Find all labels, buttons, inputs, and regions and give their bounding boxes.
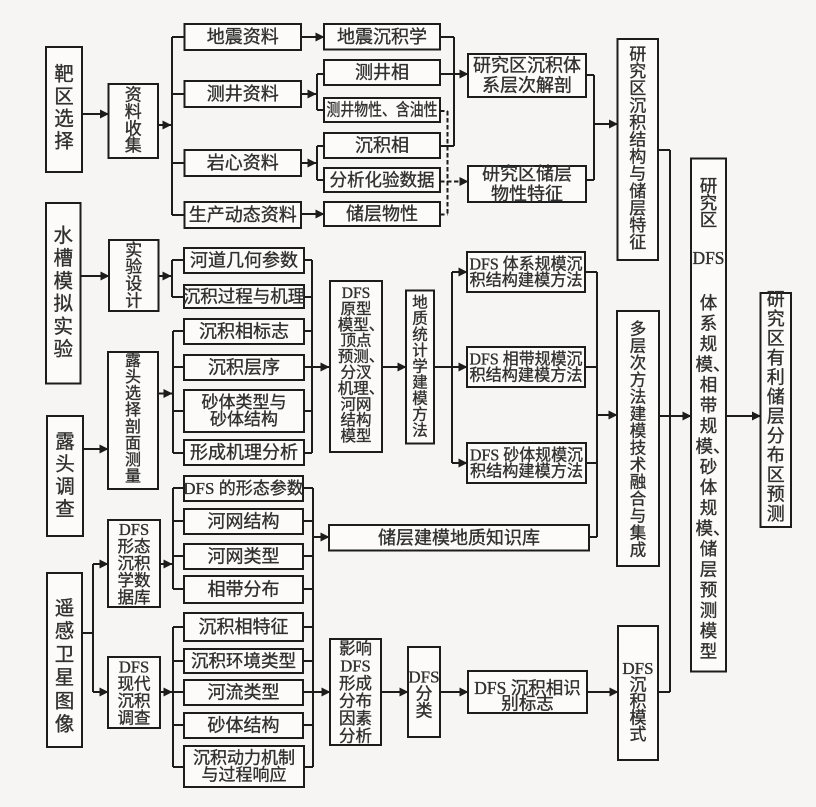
svg-text:查: 查 xyxy=(55,498,75,520)
svg-text:相: 相 xyxy=(700,375,718,395)
svg-text:结构: 结构 xyxy=(340,411,371,429)
svg-text:卫: 卫 xyxy=(55,645,75,666)
svg-text:征: 征 xyxy=(629,233,646,252)
svg-text:像: 像 xyxy=(55,714,75,736)
svg-text:层: 层 xyxy=(700,560,718,580)
svg-text:计: 计 xyxy=(412,342,428,360)
svg-text:图: 图 xyxy=(55,691,75,712)
svg-text:相带分布: 相带分布 xyxy=(208,580,280,600)
svg-text:槽: 槽 xyxy=(53,248,73,270)
svg-text:机理、: 机理、 xyxy=(338,379,385,397)
svg-text:水: 水 xyxy=(53,225,73,247)
svg-text:测井相: 测井相 xyxy=(355,63,409,83)
svg-text:质: 质 xyxy=(412,310,428,328)
svg-text:预: 预 xyxy=(700,580,718,600)
svg-text:测: 测 xyxy=(700,601,718,621)
svg-text:集: 集 xyxy=(125,136,142,155)
svg-text:验: 验 xyxy=(53,338,73,360)
svg-text:砂: 砂 xyxy=(700,457,718,477)
svg-text:河网结构: 河网结构 xyxy=(208,512,280,532)
svg-text:顶点: 顶点 xyxy=(340,332,371,350)
svg-text:择: 择 xyxy=(125,401,141,419)
svg-text:据库: 据库 xyxy=(118,588,151,607)
svg-text:调查: 调查 xyxy=(118,708,151,727)
svg-text:DFS: DFS xyxy=(342,285,370,302)
svg-text:研究区储层: 研究区储层 xyxy=(482,164,572,184)
svg-text:规: 规 xyxy=(700,498,718,518)
svg-text:模: 模 xyxy=(412,390,428,408)
svg-text:调: 调 xyxy=(55,476,75,498)
svg-text:布: 布 xyxy=(767,445,785,465)
svg-text:研: 研 xyxy=(767,289,785,309)
svg-text:河道几何参数: 河道几何参数 xyxy=(190,251,298,271)
svg-text:型: 型 xyxy=(700,641,718,661)
svg-text:统: 统 xyxy=(412,326,428,344)
svg-text:靶: 靶 xyxy=(54,64,74,86)
svg-text:区: 区 xyxy=(54,87,74,108)
svg-text:分析化验数据: 分析化验数据 xyxy=(330,170,435,190)
svg-text:择: 择 xyxy=(54,130,74,152)
svg-text:岩心资料: 岩心资料 xyxy=(207,153,279,173)
svg-text:原型: 原型 xyxy=(340,300,371,318)
svg-text:体: 体 xyxy=(700,478,718,498)
svg-text:因素: 因素 xyxy=(339,709,372,728)
svg-text:有: 有 xyxy=(767,348,785,368)
svg-text:沉积过程与机理: 沉积过程与机理 xyxy=(183,287,306,307)
svg-text:感: 感 xyxy=(55,621,75,643)
svg-text:面: 面 xyxy=(125,435,141,452)
svg-text:河流类型: 河流类型 xyxy=(208,683,280,703)
svg-text:层: 层 xyxy=(767,406,785,426)
svg-text:系: 系 xyxy=(700,314,718,334)
svg-text:星: 星 xyxy=(55,668,75,689)
svg-text:地震资料: 地震资料 xyxy=(207,27,279,47)
svg-text:砂体结构: 砂体结构 xyxy=(210,410,278,429)
svg-text:模: 模 xyxy=(700,621,718,641)
svg-text:预: 预 xyxy=(767,484,785,504)
svg-text:积结构建模方法: 积结构建模方法 xyxy=(470,366,583,385)
svg-text:储: 储 xyxy=(700,539,718,559)
svg-text:规: 规 xyxy=(700,416,718,436)
svg-text:系层次解剖: 系层次解剖 xyxy=(482,76,572,96)
svg-text:选: 选 xyxy=(125,385,141,403)
svg-text:测井资料: 测井资料 xyxy=(207,84,279,104)
svg-text:地震沉积学: 地震沉积学 xyxy=(337,27,427,47)
svg-text:建: 建 xyxy=(412,374,428,392)
svg-text:模、: 模、 xyxy=(696,355,731,375)
svg-text:模、: 模、 xyxy=(696,519,731,539)
svg-text:区: 区 xyxy=(700,210,718,230)
svg-text:区: 区 xyxy=(767,465,785,485)
svg-text:与过程响应: 与过程响应 xyxy=(202,766,287,785)
svg-text:遥: 遥 xyxy=(55,598,75,620)
svg-text:积结构建模方法: 积结构建模方法 xyxy=(470,462,583,481)
svg-text:影响: 影响 xyxy=(339,639,372,658)
svg-text:露: 露 xyxy=(125,353,141,370)
svg-text:研究区沉积体: 研究区沉积体 xyxy=(473,55,581,75)
svg-text:物性特征: 物性特征 xyxy=(491,184,563,204)
svg-text:砂体结构: 砂体结构 xyxy=(208,716,280,736)
svg-text:究: 究 xyxy=(767,309,785,329)
svg-text:河网类型: 河网类型 xyxy=(208,547,280,567)
svg-text:测: 测 xyxy=(767,504,785,524)
svg-text:预测、: 预测、 xyxy=(338,348,385,366)
svg-text:地: 地 xyxy=(412,294,428,312)
svg-text:沉积相标志: 沉积相标志 xyxy=(199,322,289,342)
svg-text:选: 选 xyxy=(54,108,74,130)
svg-text:露: 露 xyxy=(55,432,75,453)
svg-text:体: 体 xyxy=(700,293,718,313)
svg-text:式: 式 xyxy=(630,725,647,744)
svg-text:拟: 拟 xyxy=(53,293,73,315)
svg-text:规: 规 xyxy=(700,334,718,354)
svg-text:实: 实 xyxy=(53,316,73,338)
svg-text:测: 测 xyxy=(125,451,141,469)
svg-text:DFS: DFS xyxy=(692,248,724,268)
svg-text:学: 学 xyxy=(412,358,428,376)
svg-text:利: 利 xyxy=(767,367,785,387)
svg-text:头: 头 xyxy=(55,453,75,475)
svg-text:形成机理分析: 形成机理分析 xyxy=(190,443,298,463)
svg-text:分布: 分布 xyxy=(339,691,372,710)
svg-text:储层建模地质知识库: 储层建模地质知识库 xyxy=(378,528,540,548)
svg-text:计: 计 xyxy=(125,291,142,310)
svg-text:形成: 形成 xyxy=(339,674,372,693)
svg-text:生产动态资料: 生产动态资料 xyxy=(189,205,297,225)
svg-text:分: 分 xyxy=(767,426,785,446)
svg-text:沉积相特征: 沉积相特征 xyxy=(199,617,289,637)
svg-text:河网: 河网 xyxy=(340,395,371,413)
svg-text:积结构建模方法: 积结构建模方法 xyxy=(470,271,583,290)
svg-text:方: 方 xyxy=(412,406,428,424)
svg-text:分析: 分析 xyxy=(339,726,372,745)
svg-text:成: 成 xyxy=(630,541,647,560)
svg-text:沉积相: 沉积相 xyxy=(355,136,409,156)
svg-text:模: 模 xyxy=(53,270,73,292)
svg-text:模、: 模、 xyxy=(696,437,731,457)
svg-text:测井物性、含油性: 测井物性、含油性 xyxy=(327,101,438,120)
svg-text:别标志: 别标志 xyxy=(501,694,554,714)
svg-text:类: 类 xyxy=(416,701,433,720)
svg-text:带: 带 xyxy=(700,396,718,416)
svg-text:DFS 的形态参数: DFS 的形态参数 xyxy=(183,479,303,498)
svg-text:区: 区 xyxy=(767,328,785,348)
svg-text:储层物性: 储层物性 xyxy=(346,204,418,224)
svg-text:沉积层序: 沉积层序 xyxy=(208,358,280,378)
svg-text:量: 量 xyxy=(125,468,141,485)
svg-text:DFS: DFS xyxy=(340,656,370,675)
svg-text:分汊: 分汊 xyxy=(340,363,372,381)
svg-text:沉积环境类型: 沉积环境类型 xyxy=(191,651,296,671)
svg-text:头: 头 xyxy=(125,368,141,386)
svg-text:模型: 模型 xyxy=(340,427,371,445)
svg-text:储: 储 xyxy=(767,387,785,407)
svg-text:剖: 剖 xyxy=(125,418,141,436)
svg-text:法: 法 xyxy=(412,422,428,440)
svg-text:模型、: 模型、 xyxy=(338,316,385,334)
